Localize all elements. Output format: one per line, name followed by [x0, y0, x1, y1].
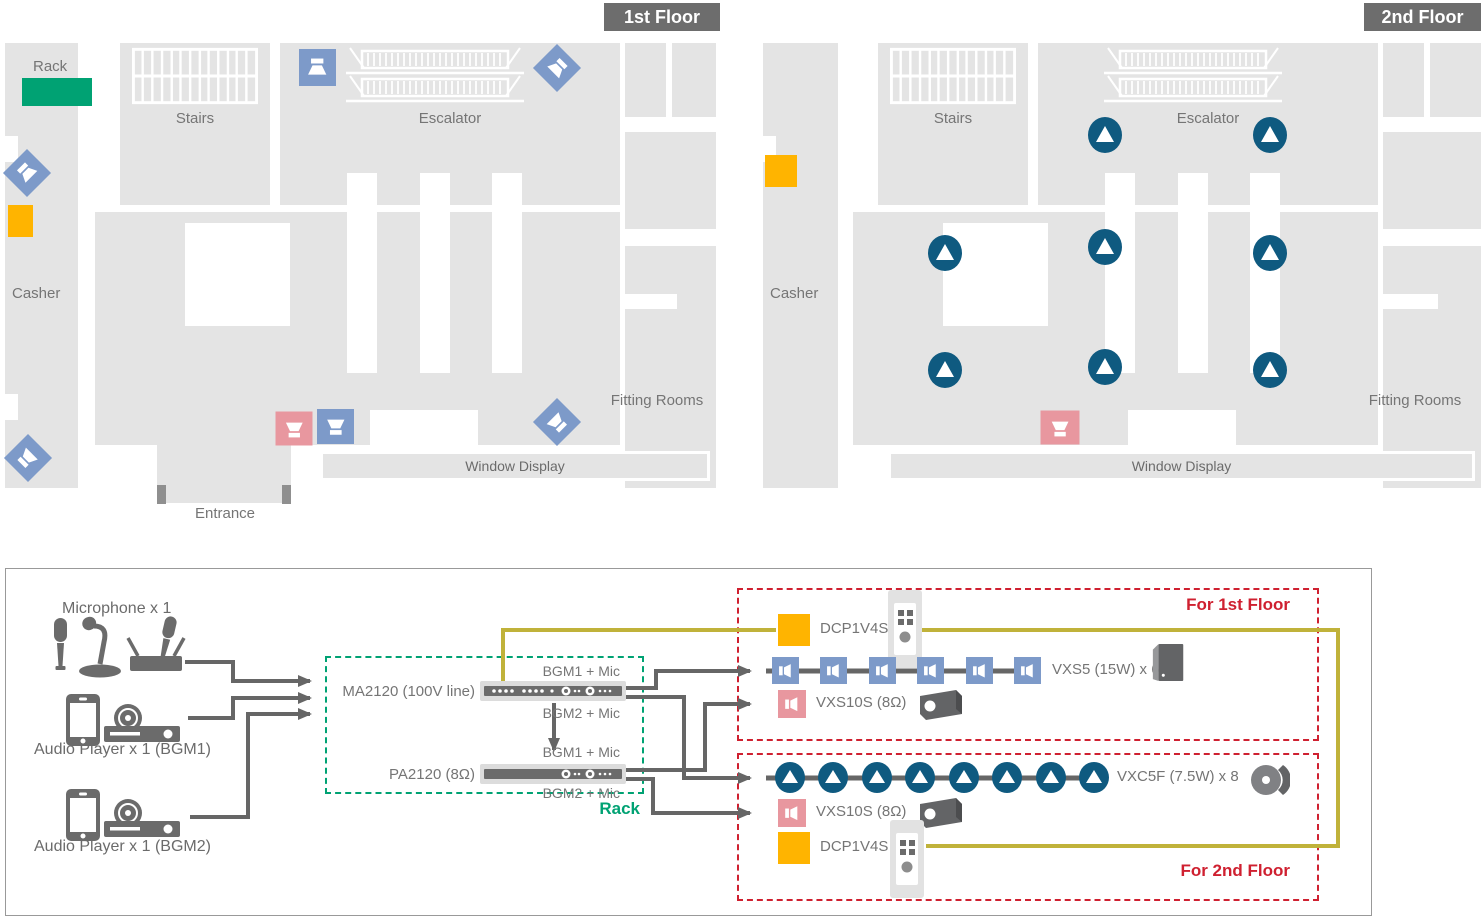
vxc5f-speaker-icon — [862, 762, 892, 793]
pa2120-amp-icon — [480, 764, 626, 784]
floor1-wall-gap — [5, 394, 18, 420]
vxs5-label: VXS5 (15W) x 6 — [1052, 661, 1160, 678]
vxs10s-3d-subwoofer-icon — [918, 796, 964, 830]
floor2-zone-title: For 2nd Floor — [1130, 861, 1290, 881]
vxs5-3d-speaker-icon — [1150, 640, 1188, 684]
floor2-vxc5f-ceiling-speaker-icon — [1088, 229, 1122, 265]
floor2-aisle — [1250, 173, 1280, 373]
dcp1v4s-icon — [778, 614, 810, 646]
dcp1v4s-label: DCP1V4S — [820, 620, 888, 637]
floor1-vxs5-speaker-icon — [299, 49, 336, 86]
floor2-aisle — [1178, 173, 1208, 373]
bgm2-label: Audio Player x 1 (BGM2) — [34, 838, 211, 856]
floor1-wall-gap — [625, 229, 716, 246]
dcp1v4s-label: DCP1V4S — [820, 838, 888, 855]
microphone-set-icon — [48, 616, 193, 678]
floor1-rack-marker — [22, 78, 92, 106]
page: 1st Floor Stairs Escalator Entrance Wind… — [0, 0, 1481, 917]
vxc5f-speaker-icon — [818, 762, 848, 793]
pa2120-label: PA2120 (8Ω) — [325, 766, 475, 783]
floor1-entrance-area — [157, 444, 291, 503]
floor2-dcp-controller-icon — [765, 155, 797, 187]
vxs10s-subwoofer-icon — [778, 799, 806, 827]
floor1-zone-title: For 1st Floor — [1130, 595, 1290, 615]
floor1-escalator-label: Escalator — [330, 110, 570, 127]
floor2-badge: 2nd Floor — [1364, 3, 1481, 31]
stairs-icon — [132, 47, 258, 105]
floor2-right-wall — [1383, 43, 1481, 488]
floor1-vxs10s-subwoofer-icon — [276, 412, 313, 446]
floor2-badge-label: 2nd Floor — [1382, 7, 1464, 28]
floor2-vxc5f-ceiling-speaker-icon — [1088, 349, 1122, 385]
floor1-aisle — [492, 173, 522, 373]
floor2-wall-gap — [1383, 117, 1481, 132]
floor1-entrance-label: Entrance — [160, 505, 290, 522]
ma2120-out2-label: BGM2 + Mic — [505, 705, 620, 721]
pa2120-out2-label: BGM2 + Mic — [505, 785, 620, 801]
floor1-cutout — [185, 223, 290, 326]
escalator-icon — [1098, 46, 1288, 110]
floor2-vxc5f-ceiling-speaker-icon — [928, 352, 962, 388]
floor2-wall-gap — [1383, 229, 1481, 246]
floor1-badge: 1st Floor — [604, 3, 720, 31]
vxc5f-label: VXC5F (7.5W) x 8 — [1117, 768, 1239, 785]
floor2-left-wall — [763, 43, 838, 488]
vxs5-speaker-icon — [966, 657, 993, 684]
floor2-cutout — [1128, 410, 1236, 445]
vxs10s-3d-subwoofer-icon — [918, 688, 964, 722]
floor1-aisle — [347, 173, 377, 373]
vxs5-speaker-icon — [772, 657, 799, 684]
ma2120-label: MA2120 (100V line) — [325, 683, 475, 700]
smartphone-icon — [66, 789, 100, 841]
floor2-casher-label: Casher — [770, 285, 818, 302]
vxs10s-label: VXS10S (8Ω) — [816, 803, 906, 820]
floor2-wall-gap — [1424, 43, 1430, 119]
pa2120-out1-label: BGM1 + Mic — [505, 744, 620, 760]
floor2-window-display-label: Window Display — [1132, 458, 1232, 474]
floor2-vxs10s-subwoofer-icon — [1041, 411, 1080, 445]
floor2-stairs-label: Stairs — [878, 110, 1028, 127]
floor1-entrance-post — [157, 485, 166, 504]
vxs5-speaker-icon — [869, 657, 896, 684]
vxc5f-speaker-icon — [1036, 762, 1066, 793]
vxs10s-label: VXS10S (8Ω) — [816, 694, 906, 711]
vxs5-speaker-icon — [917, 657, 944, 684]
floor2-vxc5f-ceiling-speaker-icon — [1088, 117, 1122, 153]
floor1-casher-label: Casher — [12, 285, 60, 302]
floor1-badge-label: 1st Floor — [624, 7, 700, 28]
floor1-wall-gap — [625, 294, 677, 309]
ma2120-amp-icon — [480, 681, 626, 701]
cd-player-icon — [104, 799, 180, 839]
floor1-wall-gap — [666, 43, 672, 119]
floor2-window-display: Window Display — [888, 451, 1475, 481]
dcp1v4s-icon — [778, 832, 810, 864]
floor1-window-display-label: Window Display — [465, 458, 565, 474]
floor1-vxs5-speaker-icon — [317, 409, 354, 444]
floor1-cutout — [370, 410, 478, 445]
smartphone-icon — [66, 694, 100, 746]
vxc5f-speaker-icon — [949, 762, 979, 793]
stairs-icon — [890, 47, 1016, 105]
floor1-aisle — [420, 173, 450, 373]
floor1-entrance-post — [282, 485, 291, 504]
floor2-cutout — [943, 223, 1048, 326]
floor2-wall-gap — [1383, 294, 1438, 309]
ma2120-out1-label: BGM1 + Mic — [505, 663, 620, 679]
floor1-rack-label: Rack — [33, 58, 67, 75]
floor2-fitting-rooms-label: Fitting Rooms — [1360, 392, 1470, 409]
floor1-left-wall — [5, 43, 78, 488]
vxs5-speaker-icon — [820, 657, 847, 684]
vxc5f-speaker-icon — [1079, 762, 1109, 793]
floor2-escalator-label: Escalator — [1088, 110, 1328, 127]
floor1-stairs-label: Stairs — [120, 110, 270, 127]
floor2-vxc5f-ceiling-speaker-icon — [928, 235, 962, 271]
cd-player-icon — [104, 704, 180, 744]
floor2-vxc5f-ceiling-speaker-icon — [1253, 117, 1287, 153]
vxc5f-speaker-icon — [992, 762, 1022, 793]
vxs5-speaker-icon — [1014, 657, 1041, 684]
floor1-dcp-controller-icon — [8, 205, 33, 237]
escalator-icon — [340, 46, 530, 110]
floor2-vxc5f-ceiling-speaker-icon — [1253, 235, 1287, 271]
rack-diagram-label: Rack — [578, 799, 640, 819]
wall-panel-icon — [890, 820, 924, 898]
vxc5f-speaker-icon — [775, 762, 805, 793]
floor1-wall-gap — [625, 117, 716, 132]
floor2-vxc5f-ceiling-speaker-icon — [1253, 352, 1287, 388]
vxc5f-speaker-icon — [905, 762, 935, 793]
vxs10s-subwoofer-icon — [778, 690, 806, 718]
floor1-window-display: Window Display — [320, 451, 710, 481]
floor2-aisle — [1105, 173, 1135, 373]
vxc5f-3d-speaker-icon — [1250, 762, 1290, 798]
floor1-fitting-rooms-label: Fitting Rooms — [602, 392, 712, 409]
